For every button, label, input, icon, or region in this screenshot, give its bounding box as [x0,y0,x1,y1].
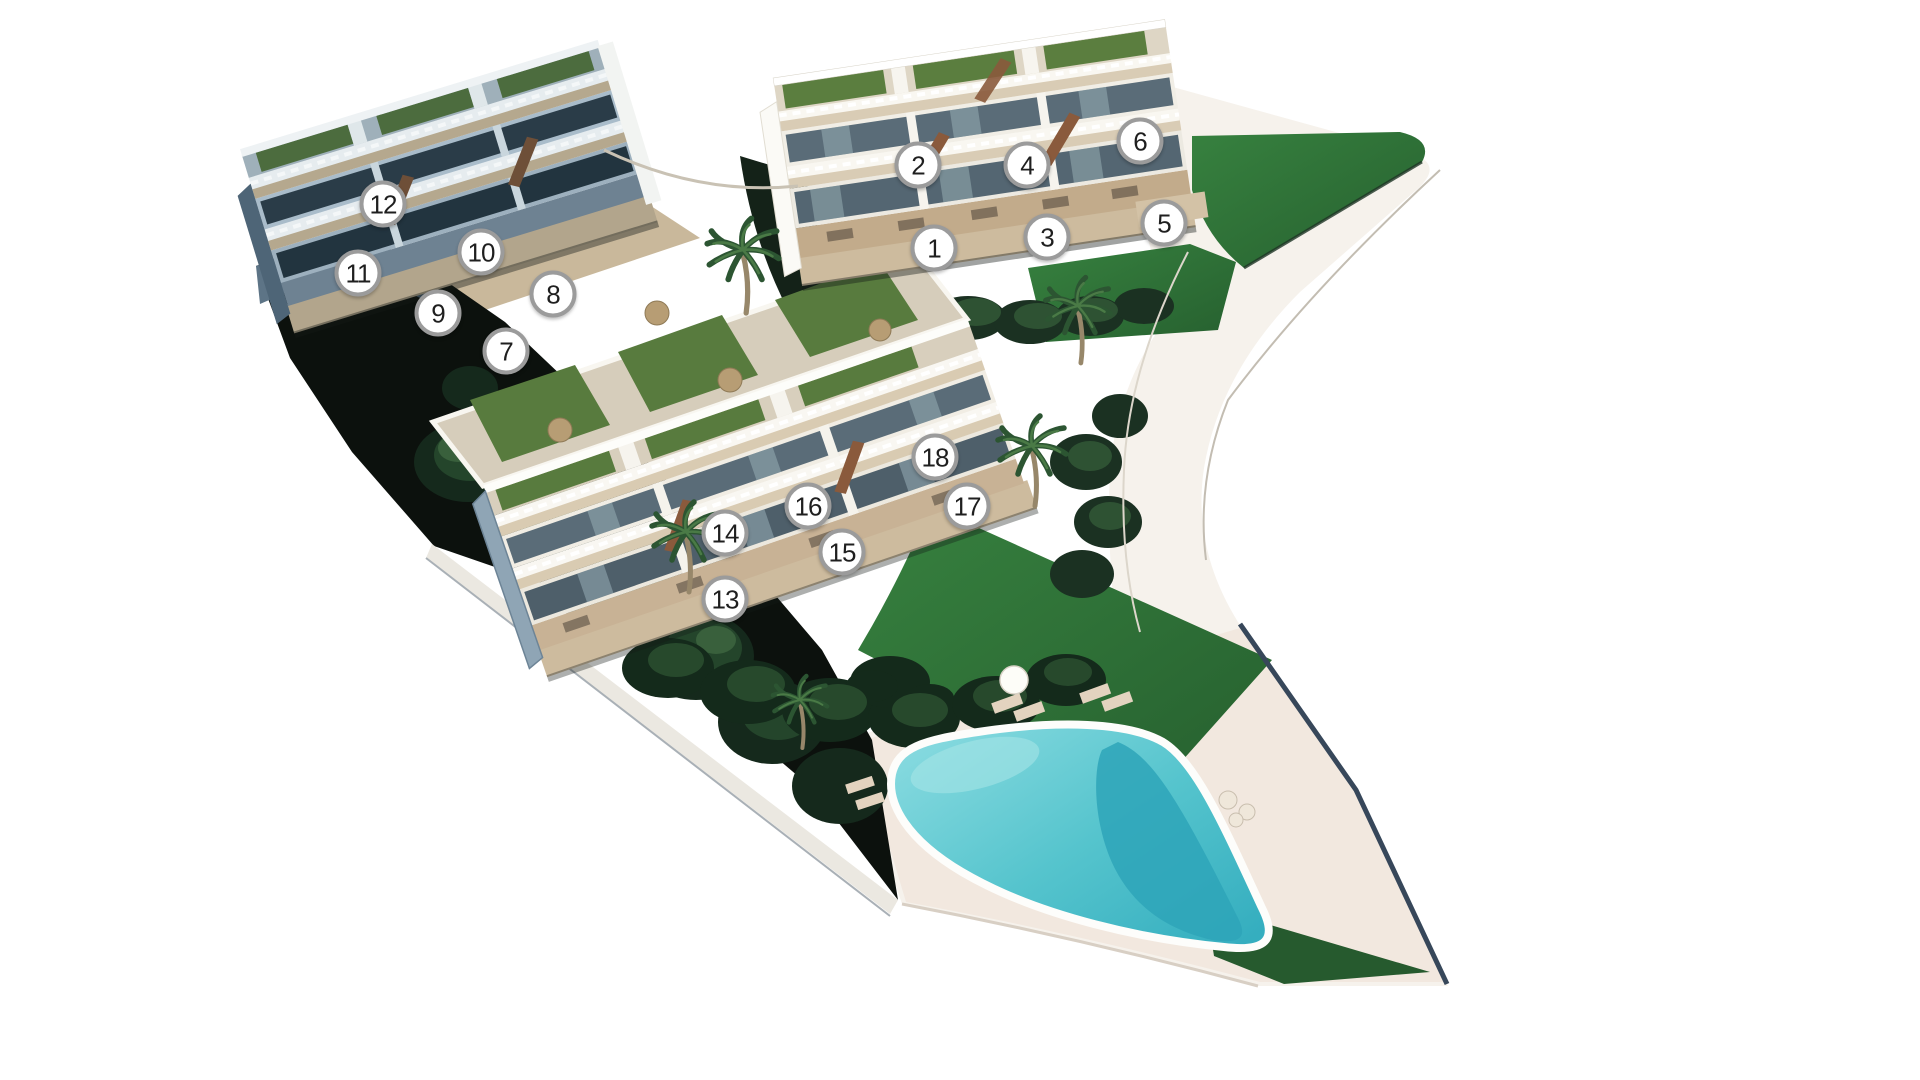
unit-marker-2[interactable]: 2 [895,142,942,189]
unit-marker-9[interactable]: 9 [415,290,462,337]
unit-markers-layer: 123456789101112131415161718 [0,0,1920,1080]
unit-marker-11[interactable]: 11 [335,250,382,297]
unit-marker-18[interactable]: 18 [912,434,959,481]
unit-marker-17[interactable]: 17 [944,483,991,530]
unit-marker-5[interactable]: 5 [1141,200,1188,247]
unit-marker-12[interactable]: 12 [360,181,407,228]
unit-marker-8[interactable]: 8 [530,271,577,318]
unit-marker-6[interactable]: 6 [1117,118,1164,165]
unit-marker-15[interactable]: 15 [819,529,866,576]
unit-marker-7[interactable]: 7 [483,328,530,375]
unit-marker-13[interactable]: 13 [702,576,749,623]
site-plan-canvas: 123456789101112131415161718 [0,0,1920,1080]
unit-marker-10[interactable]: 10 [458,229,505,276]
unit-marker-4[interactable]: 4 [1004,142,1051,189]
unit-marker-16[interactable]: 16 [785,483,832,530]
unit-marker-14[interactable]: 14 [702,510,749,557]
unit-marker-3[interactable]: 3 [1024,214,1071,261]
unit-marker-1[interactable]: 1 [911,225,958,272]
